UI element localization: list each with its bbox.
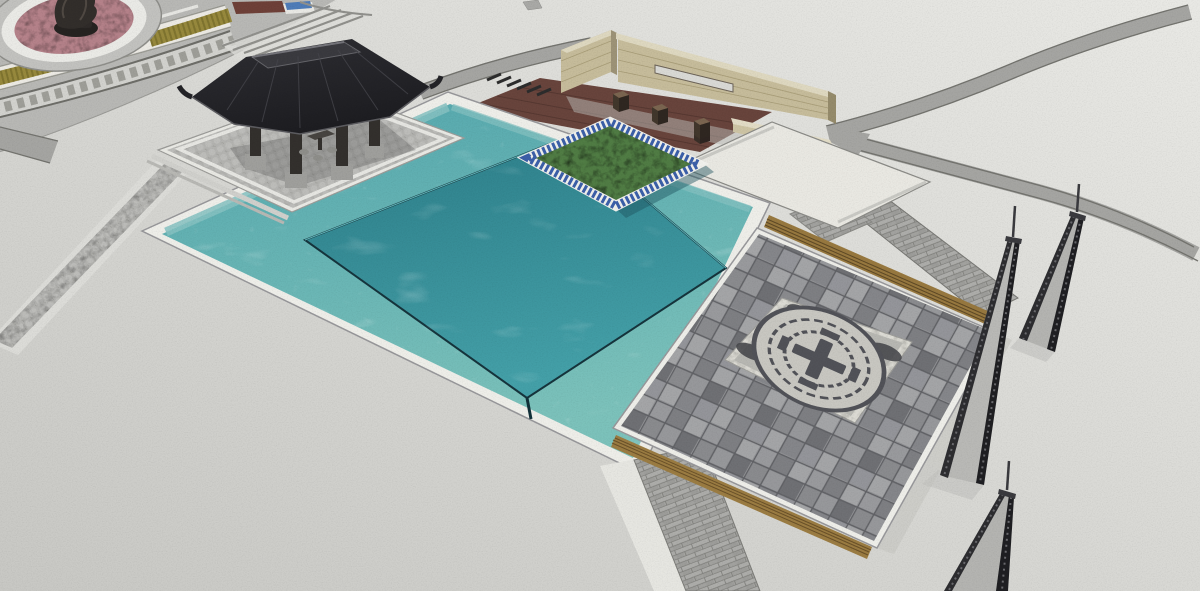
scene-canvas: [0, 0, 1200, 591]
render-grain-overlay: [0, 0, 1200, 591]
render-viewport: [0, 0, 1200, 591]
